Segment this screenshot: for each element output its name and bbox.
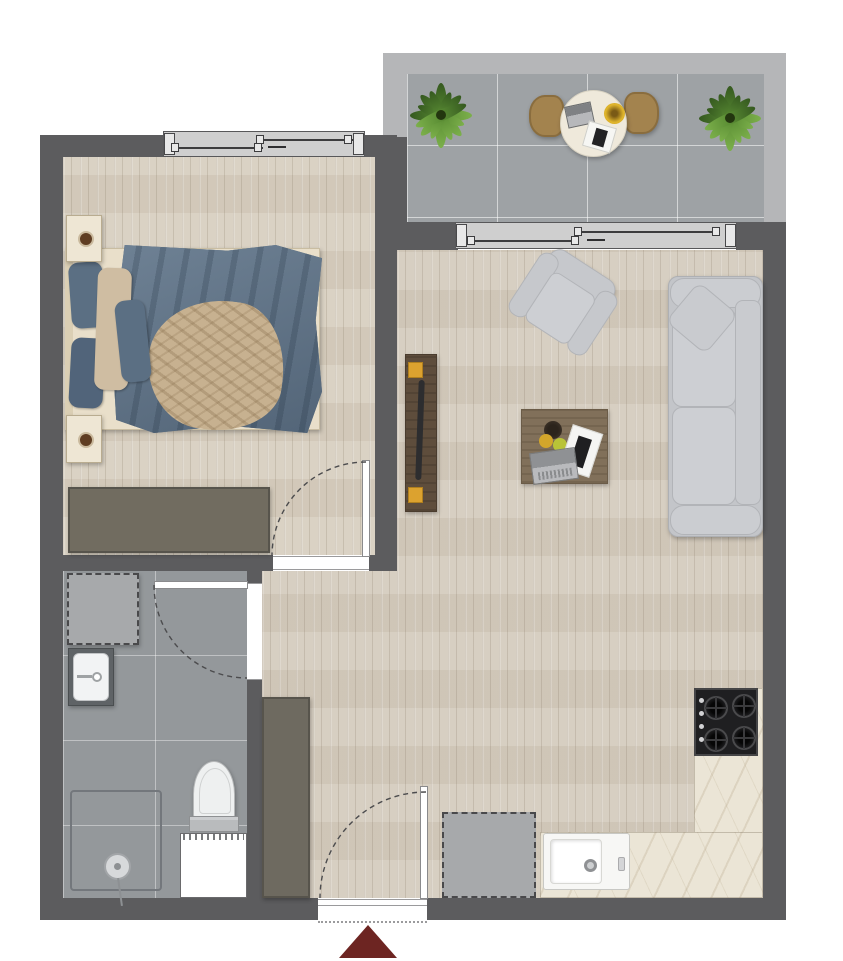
decor-box (408, 487, 423, 503)
toilet-tank (189, 816, 239, 832)
entrance-outline-dotted (318, 921, 427, 923)
sink-faucet (77, 675, 92, 678)
sink-faucet (618, 857, 625, 871)
window-rail-end (171, 143, 179, 152)
window-rail (173, 147, 263, 149)
plant-icon (697, 85, 763, 151)
sofa-backrest (735, 300, 761, 505)
bedroom-dresser (68, 487, 270, 553)
duct-shaft-hatch (183, 834, 244, 840)
bedroom-window (163, 131, 365, 157)
bedroom-door-leaf (362, 460, 370, 557)
bedroom-door-threshold (273, 556, 369, 570)
slider-rail-end (712, 227, 720, 236)
appliance-fridge (442, 812, 536, 898)
wall-bedroom-bottom-left (40, 555, 273, 571)
plant-icon (408, 82, 474, 148)
balcony-parapet-top (383, 53, 786, 74)
entrance-threshold (318, 899, 427, 906)
wall-bottom-right (427, 898, 786, 920)
balcony-sliding-door (455, 222, 737, 249)
cooktop (694, 688, 758, 756)
cooktop-knob (699, 711, 704, 716)
window-rail-end (254, 143, 262, 152)
washing-machine (67, 573, 139, 645)
bathroom-door-opening (247, 583, 262, 680)
slider-rail-end (571, 236, 579, 245)
nightstand-knob (78, 432, 94, 448)
cooktop-knob (699, 698, 704, 703)
magazine-print (592, 128, 608, 148)
decor-box (408, 362, 423, 378)
shower-head-center (114, 863, 121, 870)
balcony-chair (529, 95, 564, 137)
window-rail (258, 139, 353, 141)
balcony-parapet-left (383, 74, 407, 137)
slider-rail-end (574, 227, 582, 236)
laptop-icon (529, 447, 579, 485)
wall-bottom-left (40, 898, 318, 920)
bathroom-door-leaf (154, 581, 248, 589)
window-jamb (353, 133, 364, 155)
wall-right (763, 222, 786, 920)
entrance-arrow-icon (339, 925, 397, 958)
slider-rail (578, 231, 720, 233)
balcony-parapet-right (764, 74, 786, 222)
wall-bathroom-right-upper (247, 571, 262, 583)
sink-drain (584, 859, 597, 872)
floor-plan (0, 0, 843, 961)
wall-bedroom-bottom-right (369, 555, 397, 571)
slider-slide-arrow (587, 239, 605, 241)
slider-rail (469, 240, 579, 242)
wall-bathroom-right-lower (247, 680, 262, 898)
sofa-seat-cushion (672, 407, 736, 505)
balcony-chair (624, 92, 659, 134)
window-rail-end (344, 135, 352, 144)
cooktop-knob (699, 724, 704, 729)
cooktop-knob (699, 737, 704, 742)
slider-rail-end (467, 236, 475, 245)
wall-left (40, 135, 63, 920)
laptop-keyboard (538, 468, 573, 481)
hall-cabinet (262, 697, 310, 898)
fruit-icon (539, 434, 553, 448)
slider-jamb (725, 224, 736, 247)
duct-shaft (180, 833, 247, 898)
burner-icon (732, 694, 756, 718)
slider-jamb (456, 224, 467, 247)
sofa-armrest (670, 505, 761, 535)
flower-bouquet-icon (604, 103, 625, 124)
entrance-door-leaf (420, 786, 428, 899)
wall-living-top-left (385, 222, 458, 250)
window-slide-arrow (268, 146, 286, 148)
burner-icon (704, 728, 728, 752)
wall-bedroom-balcony (383, 137, 407, 228)
burner-icon (732, 726, 756, 750)
sink-drain (92, 672, 102, 682)
burner-icon (704, 696, 728, 720)
toilet-bowl-rim (199, 768, 231, 814)
nightstand-knob (78, 231, 94, 247)
